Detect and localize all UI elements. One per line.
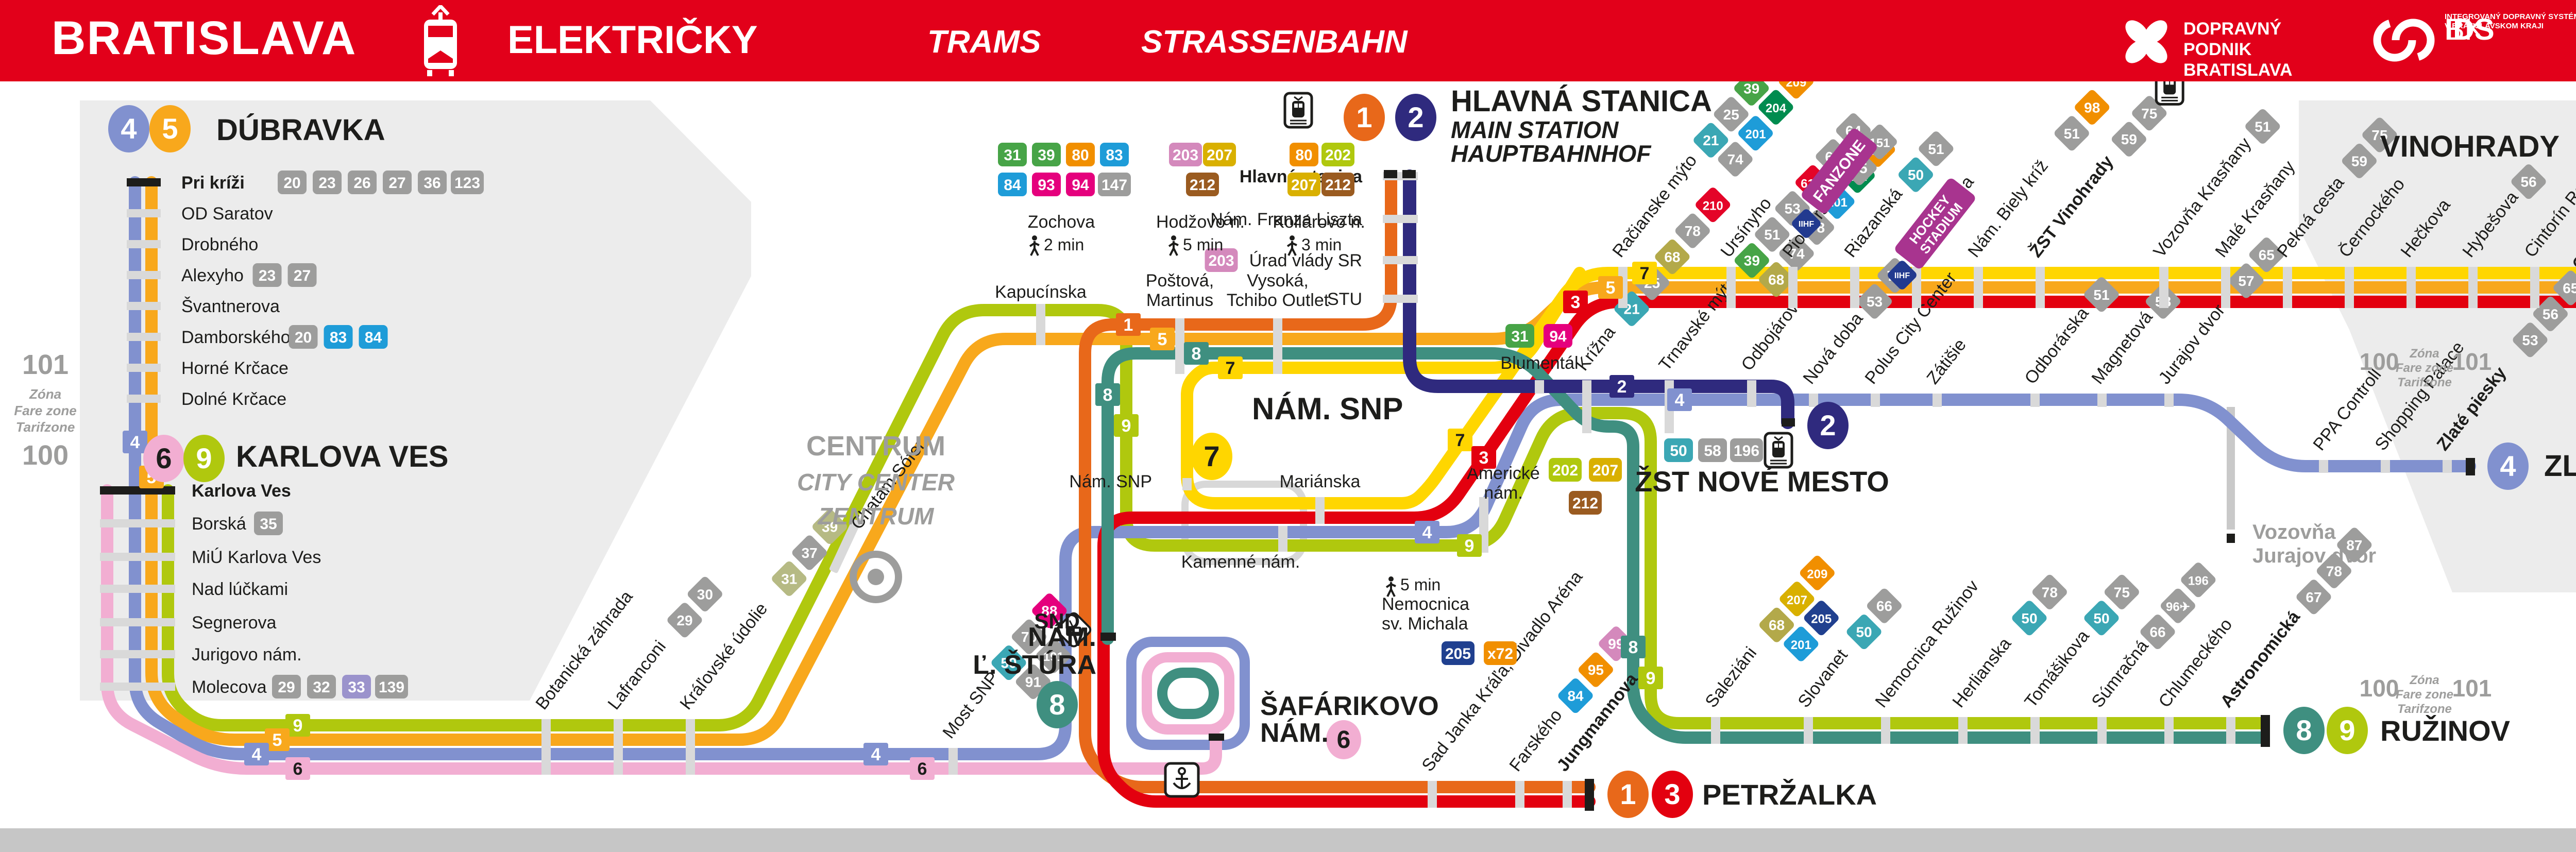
label: 202 [1552, 462, 1578, 479]
mode-title-en: TRAMS [927, 24, 1041, 60]
stop-name: STU [1327, 289, 1362, 309]
label: 75 [2141, 106, 2157, 122]
network-map: Pri kríži2023262736123OD SaratovDrobného… [0, 0, 2576, 852]
stop-tick [1383, 256, 1418, 264]
walking-person-icon [1386, 576, 1396, 597]
connection-badge: 27 [288, 263, 317, 287]
idsbk-text-bk: BK [2445, 12, 2484, 47]
line-marker-5: 5 [1598, 276, 1623, 299]
label: x72 [1487, 645, 1513, 662]
zone-number: 101 [22, 349, 69, 380]
fare-zone-boundary: 100ZónaFare zoneTarifzone101 [2360, 673, 2492, 716]
label: 209 [1807, 567, 1827, 581]
stop-tick [1383, 295, 1418, 303]
stop-tick [2381, 460, 2390, 473]
label: 20 [295, 329, 312, 346]
label: IIHF [1894, 271, 1910, 280]
walk-note-text: 5 min [1400, 575, 1440, 594]
label: 7 [1226, 359, 1235, 378]
label: 4 [130, 433, 140, 452]
stop-name: Tomášikova [2021, 626, 2093, 711]
stop-name: Drobného [181, 235, 258, 254]
connection-badge: 29 [272, 675, 301, 698]
label: 51 [1764, 227, 1780, 243]
stop-tick [1726, 267, 1736, 308]
label: 3 [1479, 448, 1489, 468]
stop-name: Jurigovo nám. [192, 645, 302, 664]
zone-word: Fare zone [2396, 688, 2453, 702]
label: 83 [330, 329, 347, 346]
mode-title-de: STRASSENBAHN [1141, 24, 1408, 60]
label: 31 [1511, 328, 1528, 345]
label: 50 [1908, 167, 1924, 183]
connection-badge: 139 [375, 675, 408, 698]
stop-tick [2030, 394, 2040, 407]
label: 80 [1072, 147, 1089, 164]
city-center-icon [853, 554, 899, 600]
fare-zone-labels-left: 101ZónaFare zoneTarifzone100 [14, 349, 76, 471]
label: 20 [283, 175, 300, 192]
stop-name: Pri kríži [181, 173, 245, 193]
walk-note: 5 minNemocnicasv. Michala [1382, 575, 1469, 634]
label: 66 [1876, 598, 1892, 614]
connection-badge: 205 [1442, 641, 1475, 665]
label: 65 [2563, 280, 2576, 296]
line-terminal-circle-6: 6 [1326, 720, 1361, 759]
connection-badge: 51 [2244, 108, 2282, 146]
line-terminal-circle-8: 8 [2283, 707, 2325, 754]
stop-tick [1535, 380, 1544, 394]
line-marker-7: 7 [1218, 356, 1243, 379]
label: 50 [2021, 610, 2037, 626]
line-terminal-circle-2: 2 [1395, 94, 1436, 141]
connection-badge: 95 [1577, 651, 1615, 689]
label: 80 [1295, 147, 1312, 164]
label: 68 [1768, 272, 1784, 288]
stop-tick [1563, 781, 1572, 808]
line-terminal-circle-1: 1 [1607, 771, 1649, 818]
label: 5 [162, 112, 178, 145]
label: 6 [293, 759, 303, 779]
connection-badge: 29 [666, 601, 704, 639]
connection-badge: 50 [2010, 599, 2048, 637]
label: 5 [1158, 330, 1167, 349]
label: 7 [1204, 440, 1219, 472]
label: 6 [918, 759, 927, 779]
stop-tick [100, 519, 175, 527]
station-Saleziáni: Saleziáni68207209201205 [1701, 554, 1840, 744]
line-marker-4: 4 [244, 743, 269, 765]
label: 207 [1592, 462, 1618, 479]
label: 53 [2522, 332, 2538, 348]
stop-tick [1582, 380, 1591, 433]
area-label: VINOHRADY [2380, 130, 2560, 163]
terminal-bar [1782, 418, 1795, 427]
stop-name: Račianske mýto [1608, 151, 1701, 261]
stop-name: Saleziáni [1701, 643, 1760, 711]
label: 9 [293, 716, 303, 736]
stop-tick [1804, 717, 1813, 744]
line-terminal-circle-6: 6 [143, 435, 184, 482]
fare-zone-panel [80, 100, 751, 701]
label: 75 [2114, 584, 2130, 600]
area-label: ZENTRUM [817, 503, 935, 530]
connection-badge: 209 [1799, 554, 1837, 592]
stop-name: Odbojárov [1737, 299, 1803, 374]
label: 53 [1867, 294, 1883, 310]
terminal-bar [2261, 715, 2270, 747]
stop-tick [1788, 267, 1798, 308]
label: 94 [1549, 328, 1567, 345]
line-marker-4: 4 [863, 743, 888, 765]
stop-name: Karlova Ves [192, 481, 291, 501]
stop-name: Tchibo Outlet [1227, 291, 1329, 310]
stop-name: Kapucínska [995, 282, 1087, 302]
connection-badge: 78 [2031, 573, 2069, 611]
connection-badge: 66 [1866, 587, 1904, 625]
stop-tick [2036, 267, 2045, 308]
stop-tick [1383, 215, 1418, 223]
connection-badge: 26 [348, 171, 377, 194]
zone-word: Tarifzone [16, 419, 75, 435]
connection-badge: 32 [307, 675, 336, 698]
stop-tick [127, 395, 161, 403]
line-terminal-circle-4: 4 [2487, 442, 2529, 490]
label: 4 [2500, 450, 2516, 482]
stop-tick [1036, 304, 1045, 345]
label: 9 [196, 442, 212, 474]
connection-badge: 20 [278, 171, 307, 194]
station-Nám. SNP: Nám. SNP [1069, 472, 1192, 491]
label: 9 [1646, 669, 1656, 688]
line-marker-8: 8 [1095, 383, 1120, 406]
label: 33 [348, 679, 365, 696]
stop-tick [1711, 717, 1720, 744]
label: 6 [156, 442, 172, 474]
label: 8 [1049, 688, 1065, 721]
connection-badge: 93 [1032, 173, 1061, 196]
connection-badge: 51 [2053, 114, 2091, 152]
line-marker-9: 9 [1457, 534, 1482, 557]
connection-badge: 80 [1290, 143, 1318, 166]
connection-badge: 207 [1203, 143, 1236, 166]
label: 201 [1745, 128, 1766, 142]
line-terminal-circle-4: 4 [108, 105, 149, 152]
label: 39 [1743, 80, 1759, 96]
stop-tick [1747, 380, 1756, 407]
label: 57 [2238, 273, 2254, 289]
stop-name: nám. [1484, 483, 1523, 503]
terminal-tick [100, 486, 175, 495]
stop-tick [2345, 267, 2354, 308]
label: 53 [1785, 201, 1801, 217]
label: 4 [1675, 390, 1685, 410]
area-label: ŽST NOVÉ MESTO [1635, 465, 1889, 498]
stop-tick [127, 302, 161, 310]
line-marker-6: 6 [285, 757, 310, 780]
label: 83 [1106, 147, 1123, 164]
label: 2 [1617, 377, 1627, 397]
label: 93 [1038, 177, 1055, 194]
connection-badge: 83 [324, 325, 353, 349]
stop-tick [100, 553, 175, 561]
label: 39 [1744, 253, 1760, 269]
connection-badge: 67 [2295, 578, 2333, 616]
stop-tick [2319, 460, 2328, 473]
terminal-bar [1402, 170, 1416, 178]
area-label: ŠAFÁRIKOVO [1260, 691, 1439, 721]
label: 66 [2149, 624, 2165, 640]
connection-cluster-Zochova: 31398083849394147Zochova2 min [998, 143, 1131, 255]
connection-badge: 203 [1169, 143, 1202, 166]
stop-tick [127, 364, 161, 372]
label: 84 [1004, 177, 1021, 194]
connection-badge: 94 [1544, 324, 1572, 348]
label: 94 [1072, 177, 1089, 194]
label: 31 [781, 571, 797, 587]
stop-tick [127, 240, 161, 248]
terminal-bar [1384, 170, 1397, 178]
stop-tick [1428, 781, 1437, 808]
label: 196 [1734, 442, 1759, 459]
area-label: SND [1034, 609, 1080, 633]
stop-tick [2164, 394, 2174, 407]
stop-name: Zátišie [1923, 335, 1970, 388]
stop-tick [2221, 267, 2230, 308]
idsbk-icon [2370, 9, 2437, 71]
label: 37 [802, 545, 818, 561]
label: 58 [1704, 442, 1721, 459]
label: 25 [1723, 107, 1739, 123]
connection-badge: x72 [1484, 641, 1517, 665]
label: 51 [2093, 287, 2109, 303]
zone-number: 100 [2360, 675, 2399, 702]
terminal-bar [2227, 534, 2235, 543]
terminal-loop [1162, 673, 1214, 714]
walk-note-text: sv. Michala [1382, 614, 1468, 634]
area-label: CENTRUM [806, 431, 945, 462]
station-Jurajov dvor: Jurajov dvor5765 [2155, 236, 2285, 407]
connection-badge: 51 [1917, 130, 1955, 168]
label: 59 [2121, 131, 2137, 147]
line-marker-1: 1 [1116, 313, 1141, 336]
connection-badge: 212 [1569, 491, 1602, 515]
label: 29 [676, 612, 692, 628]
walking-person-icon [1030, 235, 1039, 255]
line-marker-6: 6 [910, 757, 935, 780]
connection-badge: 50 [2082, 599, 2121, 637]
area-label: HLAVNÁ STANICA [1451, 84, 1712, 118]
label: 212 [1190, 177, 1215, 194]
line-marker-4: 4 [1667, 388, 1692, 411]
stop-tick [1182, 478, 1192, 490]
line-marker-7: 7 [1632, 262, 1657, 284]
connection-badge: 27 [383, 171, 412, 194]
walk-time: 2 min [1044, 235, 1084, 254]
connection-badge: 84 [1556, 677, 1595, 715]
stop-tick [2443, 460, 2452, 473]
stop-name: Magnetová [2088, 308, 2157, 388]
connection-badge: 96✈ [2159, 587, 2197, 625]
stop-name: Lafranconi [604, 637, 670, 713]
terminal-bar [1585, 779, 1594, 811]
line-marker-4: 4 [123, 431, 147, 453]
stop-name: Mariánska [1280, 472, 1361, 491]
dpb-text-2: BRATISLAVA [2183, 60, 2293, 80]
label: 56 [2543, 306, 2558, 322]
connection-badge: 98 [2073, 89, 2111, 127]
connection-badge: 196 [2179, 561, 2217, 599]
stop-name: Herlianska [1948, 634, 2015, 711]
connection-cluster-Hodžovo n.: 203207212Hodžovo n.5 min [1156, 143, 1245, 255]
zone-word: Zóna [29, 386, 61, 402]
connection-badge: 59 [2110, 120, 2148, 158]
label: 8 [1103, 385, 1113, 405]
label: 36 [423, 175, 440, 192]
stop-tick [2097, 717, 2107, 744]
label: 8 [1192, 344, 1201, 364]
stop-name: Martinus [1146, 291, 1213, 310]
stop-tick [100, 618, 175, 626]
stop-tick [2164, 717, 2174, 744]
area-label: DÚBRAVKA [216, 113, 385, 147]
label: 35 [260, 516, 277, 533]
label: 98 [2084, 99, 2100, 115]
line-terminal-circle-9: 9 [2327, 707, 2368, 754]
walk-connection-name: Zochova [1028, 212, 1095, 232]
label: 207 [1787, 593, 1807, 607]
label: 4 [871, 745, 881, 764]
label: 67 [2306, 589, 2321, 605]
label: 30 [697, 586, 713, 602]
label: 26 [353, 175, 370, 192]
connection-badge: 50 [1897, 156, 1935, 194]
stop-tick [100, 683, 175, 691]
area-label: PETRŽALKA [1702, 778, 1877, 811]
label: 203 [1173, 147, 1198, 164]
stop-tick [1515, 781, 1524, 808]
zone-word: Fare zone [2396, 361, 2453, 375]
area-label: RUŽINOV [2380, 714, 2510, 747]
zone-number: 100 [22, 440, 69, 471]
connection-badge: 20 [289, 325, 318, 349]
label: 4 [252, 745, 262, 764]
label: 50 [2093, 610, 2109, 626]
connection-badge: 207 [1589, 458, 1622, 482]
label: 84 [1567, 688, 1584, 704]
zone-number: 101 [2452, 348, 2492, 375]
label: 95 [1588, 662, 1604, 678]
label: 9 [2339, 714, 2355, 746]
stop-tick [2530, 267, 2539, 308]
connection-badge: 58 [1698, 438, 1727, 462]
label: 68 [1769, 617, 1785, 633]
railway-station-icon [1285, 93, 1312, 127]
stop-tick [541, 719, 551, 775]
label: 21 [1703, 132, 1719, 148]
area-label: ZLATÉ PIESKY [2544, 449, 2576, 483]
stop-tick [100, 585, 175, 593]
label: 4 [121, 112, 137, 145]
area-label: Ľ. ŠTÚRA [973, 650, 1096, 680]
walk-time: 3 min [1301, 235, 1342, 254]
stop-name: Vysoká, [1247, 271, 1309, 291]
stop-tick [1881, 717, 1890, 744]
label: 7 [1640, 264, 1650, 283]
stop-tick [1278, 526, 1287, 552]
poster-header: BRATISLAVA ELEKTRIČKY TRAMS STRASSENBAHN [0, 0, 2576, 81]
area-label: MAIN STATION [1451, 116, 1619, 143]
connection-badge: 202 [1321, 143, 1354, 166]
label: 4 [1422, 523, 1432, 542]
label: 139 [379, 679, 404, 696]
label: 196 [2188, 574, 2209, 588]
stop-tick [2159, 267, 2168, 308]
area-label: Vozovňa [2252, 521, 2336, 543]
zone-number: 101 [2452, 675, 2492, 702]
stop-name: Nová doba [1799, 309, 1867, 388]
connection-badge: 147 [1098, 173, 1131, 196]
terminal-bar [1100, 633, 1116, 641]
tram-icon [410, 5, 471, 77]
stop-name: Odborárska [2021, 303, 2092, 387]
label: 3 [1664, 778, 1680, 810]
label: 96✈ [2166, 600, 2190, 614]
connection-badge: 84 [998, 173, 1027, 196]
stop-name: Borská [192, 514, 246, 534]
terminal-tick [127, 178, 161, 186]
stop-tick [1958, 717, 1968, 744]
label: 51 [2064, 126, 2080, 142]
connection-cluster-Kollárovo n.: 80202207212Kollárovo n.3 min [1273, 143, 1365, 255]
walk-connection-name: Kollárovo n. [1273, 212, 1365, 232]
stop-name: Dolné Krčace [181, 389, 286, 409]
stop-tick [2283, 267, 2292, 308]
stop-name: Švantnerova [181, 297, 280, 316]
label: 31 [1004, 147, 1021, 164]
connection-badge: 212 [1186, 173, 1219, 196]
stop-name: Horné Krčace [181, 359, 289, 378]
stop-tick [1175, 318, 1184, 374]
stop-tick [2030, 717, 2040, 744]
stop-tick [686, 719, 695, 775]
label: 32 [313, 679, 330, 696]
stop-name: Alexyho [181, 266, 244, 285]
label: 68 [1664, 249, 1680, 265]
label: 23 [259, 267, 276, 284]
label: 23 [318, 175, 335, 192]
stop-tick [127, 333, 161, 341]
label: 147 [1101, 177, 1127, 194]
stop-tick [2406, 267, 2416, 308]
connection-badge: 35 [254, 512, 283, 535]
label: 9 [1122, 416, 1131, 436]
line-terminal-circle-2: 2 [1807, 402, 1849, 449]
line-marker-3: 3 [1563, 291, 1588, 313]
stop-tick [948, 748, 958, 775]
footer-strip [0, 828, 2576, 852]
label: 84 [365, 329, 382, 346]
line-marker-8: 8 [1621, 636, 1646, 658]
city-title: BRATISLAVA [52, 11, 357, 65]
zone-number: 100 [2360, 348, 2399, 375]
zone-word: Tarifzone [2397, 702, 2452, 716]
zone-word: Zóna [2409, 347, 2439, 361]
label: 203 [1208, 252, 1234, 269]
label: 8 [2296, 714, 2312, 746]
connection-badge: 78 [1674, 212, 1712, 250]
connection-badge: 31 [998, 143, 1027, 166]
